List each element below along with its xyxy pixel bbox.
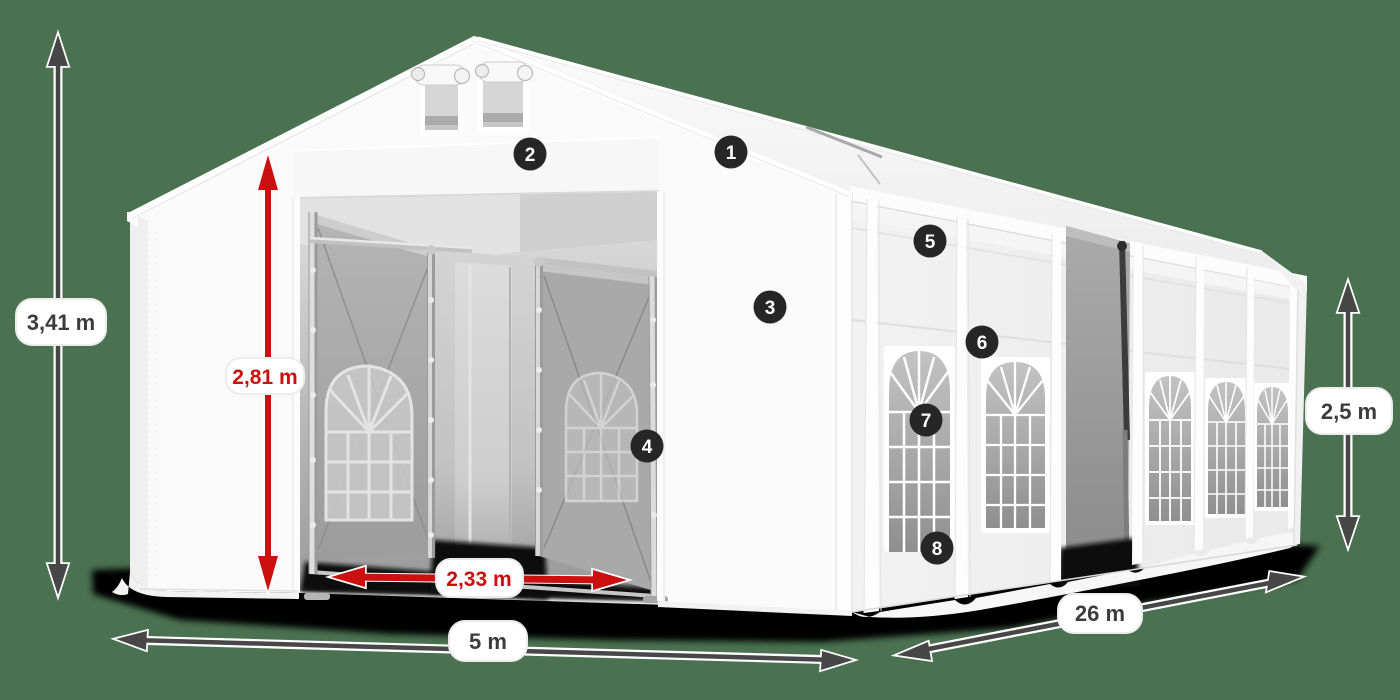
svg-text:4: 4 (642, 437, 653, 458)
svg-text:3,41 m: 3,41 m (27, 310, 96, 335)
svg-text:2: 2 (525, 145, 536, 166)
svg-text:6: 6 (977, 333, 988, 354)
svg-text:1: 1 (726, 143, 737, 164)
svg-text:5 m: 5 m (469, 629, 507, 654)
svg-text:3: 3 (765, 298, 776, 319)
svg-text:2,33 m: 2,33 m (446, 568, 511, 591)
svg-text:7: 7 (921, 411, 932, 432)
svg-text:2,81 m: 2,81 m (232, 366, 297, 389)
svg-text:8: 8 (932, 539, 943, 560)
svg-text:2,5 m: 2,5 m (1321, 399, 1377, 424)
svg-text:5: 5 (925, 232, 936, 253)
svg-text:26 m: 26 m (1075, 601, 1125, 626)
